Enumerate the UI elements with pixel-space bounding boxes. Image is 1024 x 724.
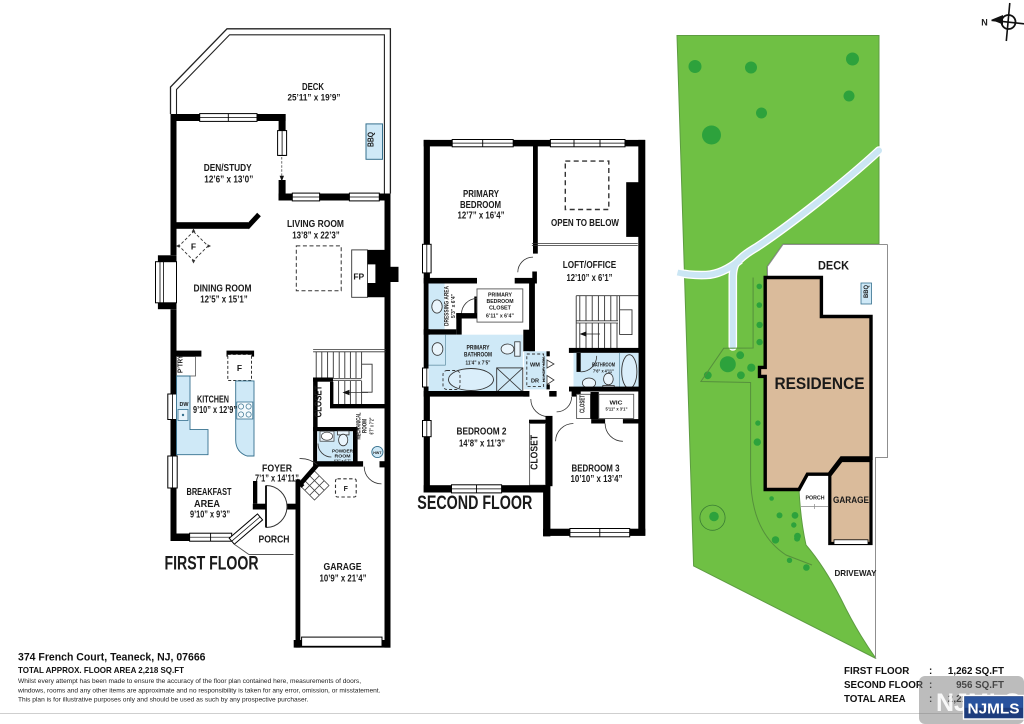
svg-text:10’10” x 13’4”: 10’10” x 13’4” — [571, 474, 623, 485]
svg-text:PORCH: PORCH — [806, 496, 825, 502]
svg-text:LOFT/OFFICE: LOFT/OFFICE — [563, 259, 617, 271]
svg-text:Whilst every attempt has been: Whilst every attempt has been made to en… — [18, 678, 361, 685]
svg-text:BREAKFAST: BREAKFAST — [187, 486, 232, 498]
svg-text:BEDROOM: BEDROOM — [460, 199, 501, 211]
svg-text:OPEN TO BELOW: OPEN TO BELOW — [551, 217, 619, 229]
svg-text:F: F — [344, 486, 349, 493]
svg-text:windows, rooms and any other i: windows, rooms and any other items are a… — [17, 687, 381, 694]
svg-text:GARAGE: GARAGE — [324, 561, 362, 573]
svg-text:DRESSING AREA: DRESSING AREA — [445, 285, 451, 326]
svg-text:SECOND FLOOR: SECOND FLOOR — [417, 493, 532, 514]
svg-text:F: F — [237, 363, 242, 373]
svg-text:TOTAL APPROX. FLOOR AREA 2,218: TOTAL APPROX. FLOOR AREA 2,218 SQ.FT — [18, 666, 184, 675]
svg-text:7’6” x 4’11”: 7’6” x 4’11” — [593, 369, 614, 374]
svg-text:DR: DR — [531, 379, 539, 385]
svg-text:AREA: AREA — [194, 498, 220, 510]
svg-text:BEDROOM 3: BEDROOM 3 — [572, 463, 620, 475]
svg-text:SECOND FLOOR: SECOND FLOOR — [844, 680, 923, 691]
svg-text:13’8” x 22’3”: 13’8” x 22’3” — [292, 231, 340, 242]
svg-text:F: F — [191, 242, 196, 252]
svg-text:25’11” x 19’9”: 25’11” x 19’9” — [288, 93, 341, 104]
svg-text:6’11” x 6’4”: 6’11” x 6’4” — [486, 314, 515, 320]
svg-text:NJMLS: NJMLS — [968, 702, 1020, 718]
svg-text:PRIMARY: PRIMARY — [467, 345, 491, 352]
svg-text:DINING ROOM: DINING ROOM — [194, 283, 252, 295]
svg-text:9’10” x 9’3”: 9’10” x 9’3” — [190, 510, 230, 521]
svg-text:FIRST FLOOR: FIRST FLOOR — [844, 666, 909, 677]
svg-text::: : — [929, 666, 932, 677]
svg-text:12’10” x 6’1”: 12’10” x 6’1” — [567, 273, 613, 284]
svg-text:CLOSET: CLOSET — [314, 386, 325, 418]
svg-text:14’8” x 11’3”: 14’8” x 11’3” — [459, 439, 505, 450]
svg-text:This plan is for illustrative: This plan is for illustrative purposes o… — [18, 696, 308, 703]
svg-text:11’4” x 7’5”: 11’4” x 7’5” — [466, 361, 491, 367]
svg-text:BBQ: BBQ — [367, 132, 376, 147]
svg-text:12’6” x 13’0”: 12’6” x 13’0” — [204, 175, 253, 186]
svg-text:5’11” x 3’1”: 5’11” x 3’1” — [606, 407, 628, 412]
svg-text:DEN/STUDY: DEN/STUDY — [204, 162, 252, 174]
svg-text:CLOSET: CLOSET — [530, 435, 541, 470]
svg-text:ROOM: ROOM — [362, 419, 369, 433]
svg-text:LAUNDRY AREA: LAUNDRY AREA — [542, 356, 546, 383]
svg-text:10’9” x 21’4”: 10’9” x 21’4” — [320, 574, 367, 585]
svg-text:DECK: DECK — [302, 81, 324, 93]
svg-text:PRIMARY: PRIMARY — [488, 293, 512, 299]
svg-text:CLOSET: CLOSET — [489, 306, 512, 312]
svg-text:7’1” x 14’11”: 7’1” x 14’11” — [255, 474, 299, 485]
svg-text:TOTAL AREA: TOTAL AREA — [844, 694, 906, 705]
svg-text:RESIDENCE: RESIDENCE — [775, 375, 865, 393]
svg-text:BATHROOM: BATHROOM — [464, 352, 492, 359]
svg-text:LIVING ROOM: LIVING ROOM — [287, 218, 344, 230]
svg-text:FIRST FLOOR: FIRST FLOOR — [165, 554, 259, 575]
svg-text:6’6” x 6’7”: 6’6” x 6’7” — [334, 458, 351, 463]
svg-text:GARAGE: GARAGE — [833, 495, 869, 506]
svg-text:KITCHEN: KITCHEN — [197, 394, 229, 406]
svg-text:FP: FP — [353, 272, 364, 282]
svg-text:P’TRY: P’TRY — [175, 355, 184, 373]
svg-text:374 French Court, Teaneck, NJ,: 374 French Court, Teaneck, NJ, 07666 — [18, 652, 206, 664]
svg-text:DECK: DECK — [818, 261, 850, 273]
svg-text:6’7” x 7’2”: 6’7” x 7’2” — [370, 417, 376, 434]
svg-text:PRIMARY: PRIMARY — [463, 188, 499, 200]
svg-text:12’7” x 16’4”: 12’7” x 16’4” — [458, 211, 505, 222]
svg-text:WM: WM — [530, 363, 540, 369]
svg-text:BEDROOM: BEDROOM — [487, 299, 514, 305]
svg-text:BBQ: BBQ — [864, 285, 870, 298]
svg-text:PORCH: PORCH — [259, 534, 290, 546]
svg-text:1,262 SQ.FT: 1,262 SQ.FT — [948, 666, 1004, 677]
svg-text:9’10” x 12’9”: 9’10” x 12’9” — [193, 405, 237, 416]
svg-text:5’3” x 6’4”: 5’3” x 6’4” — [451, 294, 457, 318]
svg-text:BEDROOM 2: BEDROOM 2 — [457, 426, 507, 438]
svg-text:CLOSET: CLOSET — [579, 395, 586, 413]
svg-text:N: N — [981, 18, 988, 28]
svg-text:12’5” x 15’1”: 12’5” x 15’1” — [200, 295, 248, 306]
svg-text:DRIVEWAY: DRIVEWAY — [835, 568, 877, 578]
svg-text:HWT: HWT — [373, 451, 382, 455]
svg-text:DW: DW — [180, 402, 190, 408]
